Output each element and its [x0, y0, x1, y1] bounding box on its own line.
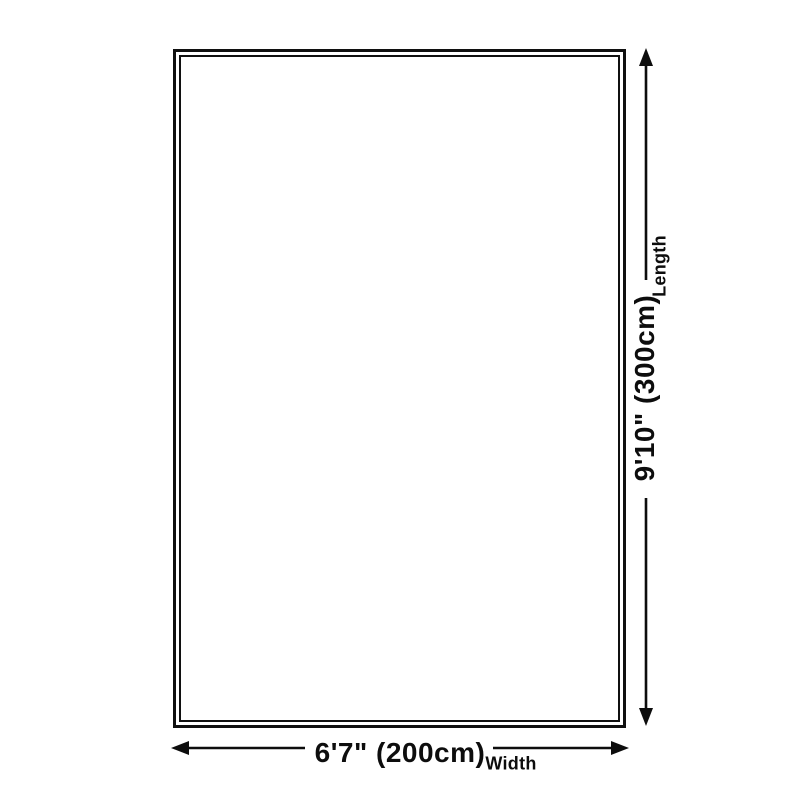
dimension-diagram: 6'7" (200cm) Width 9'10" (300cm) Length — [0, 0, 800, 800]
length-dimension-label: Length — [650, 235, 671, 297]
arrow-down-icon — [639, 708, 653, 726]
arrow-left-icon — [171, 741, 189, 755]
product-outline-rectangle — [173, 49, 626, 728]
arrow-right-icon — [611, 741, 629, 755]
width-dimension-label: Width — [485, 754, 536, 775]
arrow-up-icon — [639, 48, 653, 66]
length-dimension-value: 9'10" (300cm) — [629, 295, 661, 482]
width-dimension-value: 6'7" (200cm) — [315, 737, 486, 769]
product-outline-inner-border — [179, 55, 620, 722]
